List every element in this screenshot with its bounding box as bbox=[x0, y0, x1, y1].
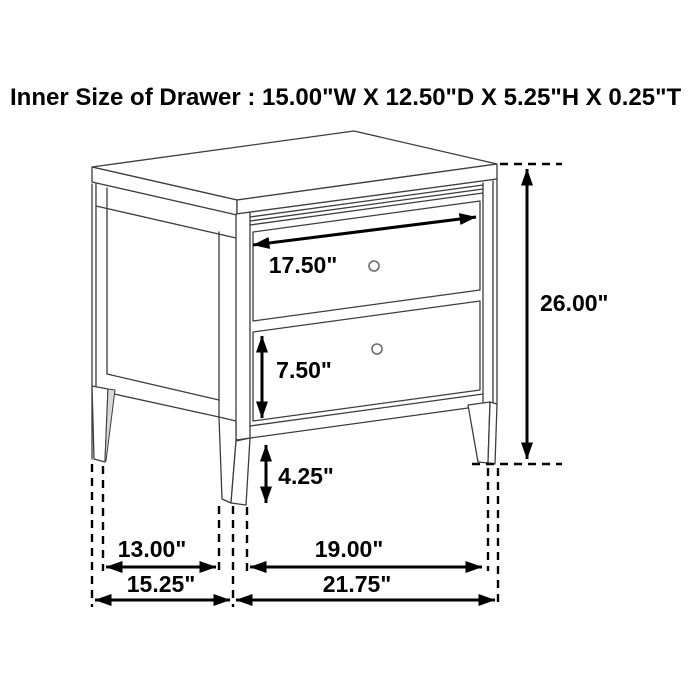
dimension-diagram-page: Inner Size of Drawer : 15.00"W X 12.50"D… bbox=[0, 0, 700, 700]
front-right-leg bbox=[468, 402, 497, 464]
label-leg-clearance: 4.25" bbox=[278, 463, 334, 489]
nightstand-illustration bbox=[92, 131, 497, 505]
label-depth-inner: 13.00" bbox=[118, 536, 186, 562]
label-width-outer: 21.75" bbox=[323, 571, 391, 597]
label-overall-height: 26.00" bbox=[540, 290, 608, 316]
label-depth-outer: 15.25" bbox=[127, 571, 195, 597]
diagram-title: Inner Size of Drawer : 15.00"W X 12.50"D… bbox=[10, 84, 681, 111]
label-drawer-height: 7.50" bbox=[276, 357, 332, 383]
bottom-drawer-knob bbox=[372, 344, 382, 354]
cabinet-side bbox=[92, 184, 236, 459]
label-width-inner: 19.00" bbox=[315, 536, 383, 562]
nightstand-dimension-drawing: Inner Size of Drawer : 15.00"W X 12.50"D… bbox=[0, 0, 700, 700]
back-left-leg bbox=[92, 386, 115, 462]
top-drawer-knob bbox=[369, 261, 379, 271]
label-drawer-width: 17.50" bbox=[269, 252, 337, 278]
